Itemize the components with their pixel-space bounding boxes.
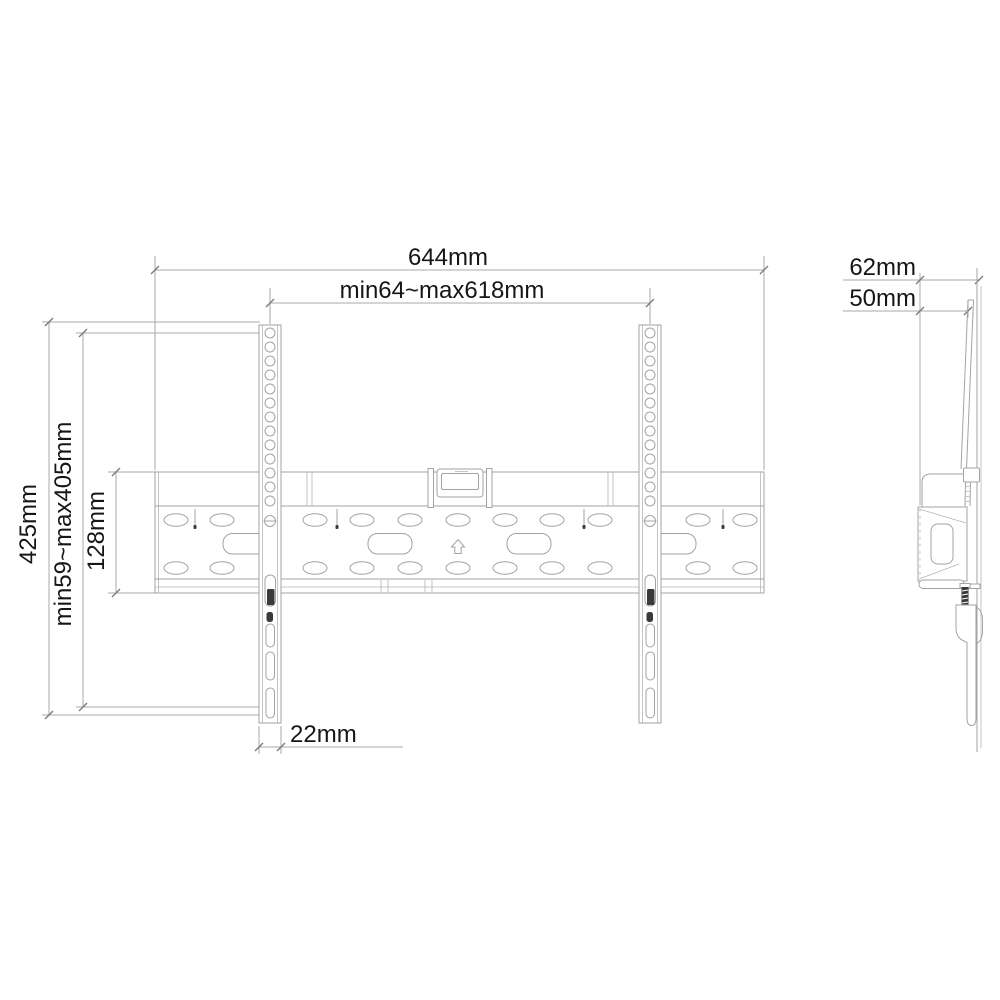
drawing-canvas: 644mm min64~max618mm 425mm mi	[0, 0, 1000, 1000]
dimension-rail-spacing: min64~max618mm	[266, 277, 654, 324]
overall-width-label: 644mm	[408, 244, 488, 271]
dimension-depth-to-rail: 50mm	[843, 285, 972, 318]
bracket-technical-drawing: 644mm min64~max618mm 425mm mi	[0, 0, 1000, 1000]
dimension-plate-height: 128mm	[83, 468, 156, 597]
right-rail	[639, 325, 661, 723]
rail-spacing-label: min64~max618mm	[340, 277, 545, 304]
rail-width-label: 22mm	[290, 721, 357, 748]
dimension-rail-width: 22mm	[255, 721, 403, 754]
vesa-height-label: min59~max405mm	[50, 422, 77, 627]
left-rail	[259, 325, 281, 723]
overall-height-label: 425mm	[15, 484, 42, 564]
plate-height-label: 128mm	[83, 491, 110, 571]
front-view: 644mm min64~max618mm 425mm mi	[15, 244, 768, 754]
side-screw-and-hook	[956, 584, 980, 726]
side-view: 62mm 50mm	[843, 254, 983, 752]
depth-to-rail-label: 50mm	[849, 285, 916, 312]
side-wall-plate-profile	[977, 268, 983, 752]
wall-plate	[155, 469, 764, 594]
side-channel-box	[918, 474, 967, 589]
depth-total-label: 62mm	[849, 254, 916, 281]
